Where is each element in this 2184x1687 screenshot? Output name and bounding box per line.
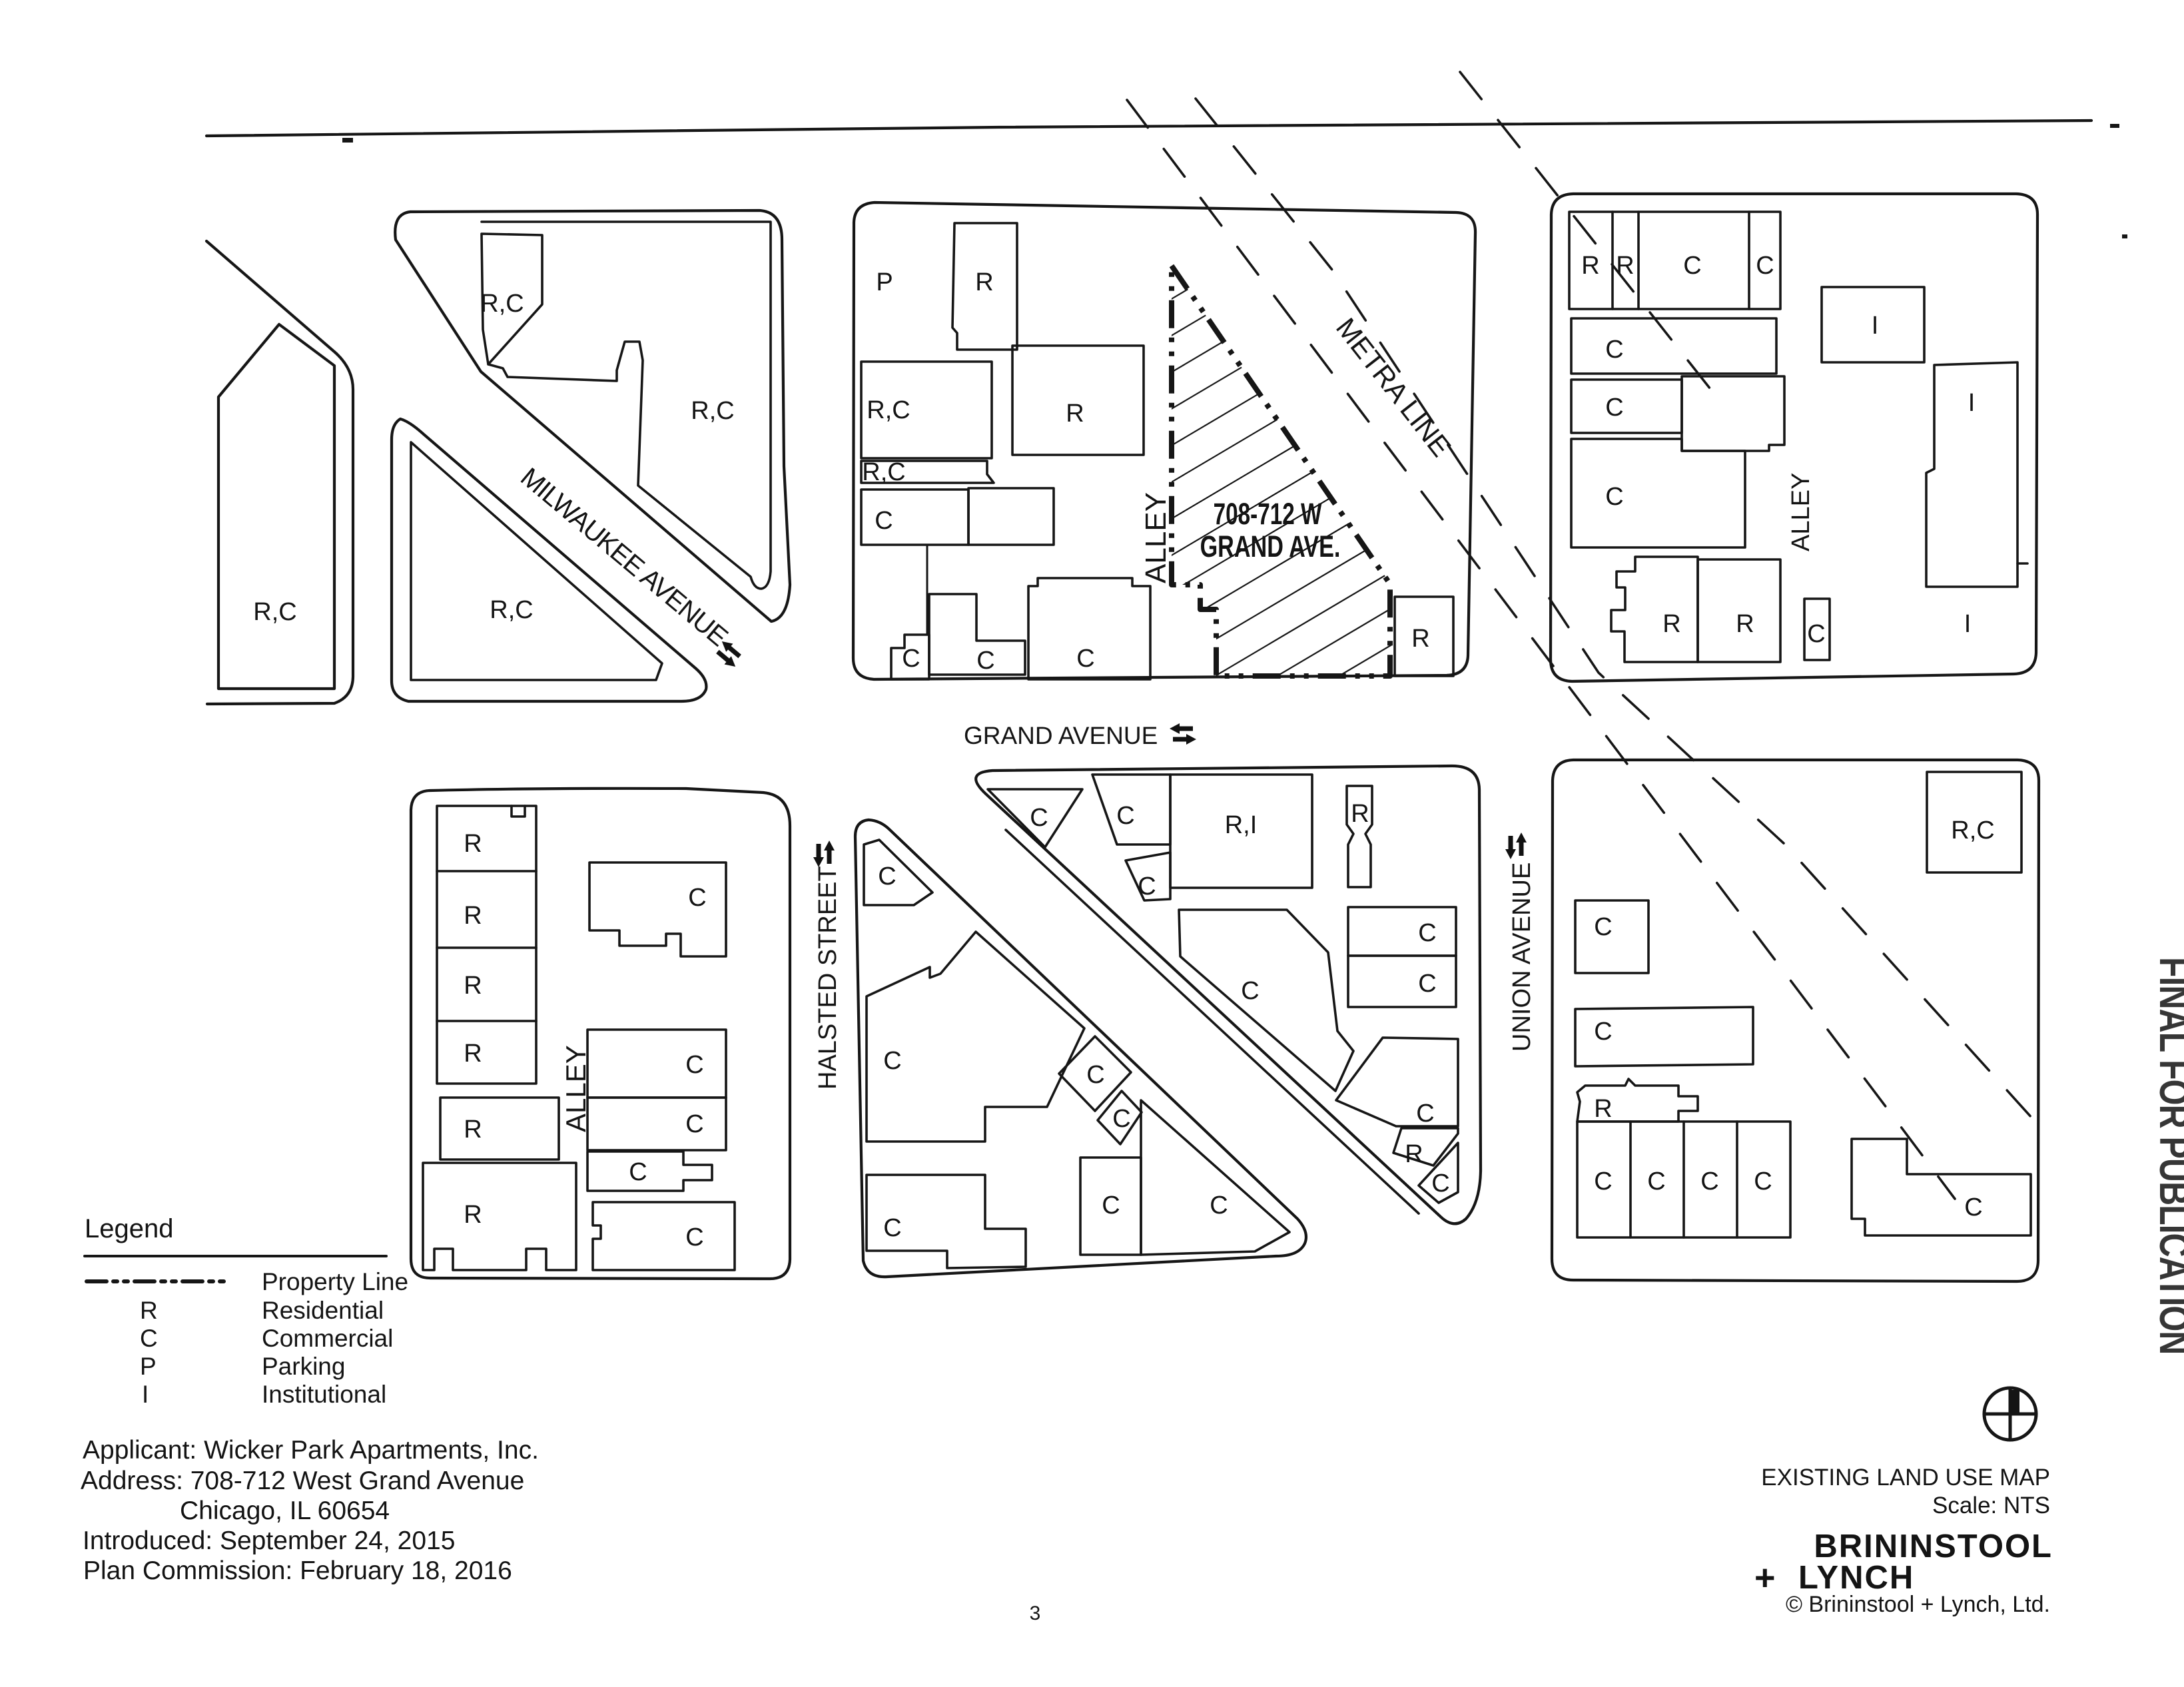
svg-text:GRAND AVE.: GRAND AVE. bbox=[1200, 531, 1341, 564]
svg-text:Commercial: Commercial bbox=[262, 1325, 393, 1352]
svg-text:C: C bbox=[1418, 970, 1436, 998]
svg-text:C: C bbox=[878, 862, 896, 890]
svg-text:C: C bbox=[1647, 1168, 1665, 1195]
svg-text:C: C bbox=[902, 645, 920, 673]
svg-text:C: C bbox=[629, 1158, 647, 1186]
svg-text:R,C: R,C bbox=[1951, 817, 1994, 844]
svg-text:ALLEY: ALLEY bbox=[1140, 492, 1172, 583]
svg-text:C: C bbox=[1116, 802, 1134, 830]
svg-text:R,C: R,C bbox=[490, 596, 533, 624]
svg-text:ALLEY: ALLEY bbox=[1787, 473, 1815, 551]
svg-text:C: C bbox=[685, 1110, 703, 1138]
svg-text:C: C bbox=[1807, 620, 1825, 648]
svg-text:LYNCH: LYNCH bbox=[1798, 1560, 1914, 1596]
svg-text:Applicant: Wicker Park Apartme: Applicant: Wicker Park Apartments, Inc. bbox=[83, 1436, 539, 1465]
svg-text:BRININSTOOL: BRININSTOOL bbox=[1814, 1528, 2053, 1564]
svg-text:Property Line: Property Line bbox=[262, 1268, 408, 1295]
svg-text:C: C bbox=[1700, 1168, 1718, 1195]
svg-text:C: C bbox=[1431, 1170, 1449, 1197]
svg-text:C: C bbox=[1683, 252, 1701, 280]
svg-text:R: R bbox=[464, 830, 482, 858]
svg-text:UNION AVENUE: UNION AVENUE bbox=[1508, 862, 1536, 1052]
svg-text:C: C bbox=[1112, 1105, 1130, 1133]
svg-text:C: C bbox=[1416, 1100, 1434, 1128]
svg-text:Scale: NTS: Scale: NTS bbox=[1932, 1493, 2050, 1518]
svg-text:R,I: R,I bbox=[1225, 811, 1258, 839]
svg-text:C: C bbox=[1210, 1191, 1228, 1219]
svg-text:P: P bbox=[876, 268, 893, 296]
svg-text:C: C bbox=[1605, 483, 1623, 511]
svg-text:I: I bbox=[1968, 389, 1976, 417]
svg-text:Chicago, IL 60654: Chicago, IL 60654 bbox=[180, 1497, 390, 1525]
svg-text:R: R bbox=[1616, 252, 1634, 280]
svg-text:C: C bbox=[685, 1223, 703, 1251]
svg-text:R: R bbox=[975, 268, 993, 296]
svg-text:R: R bbox=[1662, 610, 1680, 638]
svg-text:C: C bbox=[1756, 252, 1774, 280]
svg-text:C: C bbox=[1418, 919, 1436, 947]
svg-text:R: R bbox=[1594, 1095, 1612, 1123]
svg-text:P: P bbox=[140, 1353, 157, 1380]
svg-text:R: R bbox=[464, 1201, 482, 1229]
svg-text:C: C bbox=[883, 1214, 901, 1242]
svg-text:R,C: R,C bbox=[867, 396, 910, 424]
svg-text:C: C bbox=[685, 1051, 703, 1079]
svg-text:I: I bbox=[1872, 312, 1879, 340]
svg-text:R: R bbox=[464, 972, 482, 1000]
svg-text:C: C bbox=[883, 1047, 901, 1075]
svg-text:HALSTED STREET: HALSTED STREET bbox=[814, 866, 842, 1090]
svg-text:R: R bbox=[464, 902, 482, 930]
svg-text:R: R bbox=[1066, 400, 1084, 428]
svg-text:R: R bbox=[1411, 625, 1429, 653]
svg-text:C: C bbox=[1102, 1191, 1120, 1219]
svg-text:I: I bbox=[142, 1381, 149, 1408]
svg-text:R: R bbox=[1581, 252, 1599, 280]
svg-text:GRAND AVENUE: GRAND AVENUE bbox=[964, 722, 1158, 749]
svg-text:C: C bbox=[688, 884, 706, 912]
svg-text:C: C bbox=[1594, 1018, 1612, 1046]
svg-text:C: C bbox=[1754, 1168, 1772, 1195]
svg-text:C: C bbox=[976, 647, 994, 675]
svg-text:R: R bbox=[1736, 610, 1754, 638]
svg-text:C: C bbox=[140, 1325, 158, 1352]
svg-text:C: C bbox=[875, 507, 893, 535]
svg-text:Parking: Parking bbox=[262, 1353, 345, 1380]
svg-text:C: C bbox=[1076, 645, 1094, 673]
svg-text:C: C bbox=[1138, 872, 1156, 900]
svg-text:C: C bbox=[1964, 1193, 1982, 1221]
svg-text:C: C bbox=[1086, 1061, 1104, 1089]
svg-text:C: C bbox=[1605, 394, 1623, 422]
svg-text:R,C: R,C bbox=[691, 397, 734, 425]
svg-text:R,C: R,C bbox=[862, 458, 905, 486]
svg-text:R: R bbox=[1351, 800, 1369, 828]
svg-text:R: R bbox=[1405, 1140, 1423, 1168]
svg-text:EXISTING LAND USE MAP: EXISTING LAND USE MAP bbox=[1761, 1465, 2050, 1491]
svg-text:3: 3 bbox=[1030, 1602, 1041, 1624]
svg-text:R,C: R,C bbox=[480, 290, 524, 318]
svg-text:C: C bbox=[1030, 804, 1048, 832]
svg-text:C: C bbox=[1594, 913, 1612, 941]
svg-text:R,C: R,C bbox=[253, 598, 296, 626]
svg-text:C: C bbox=[1594, 1168, 1612, 1195]
svg-text:METRA LINE: METRA LINE bbox=[1330, 312, 1457, 463]
svg-text:Introduced: September 24, 2015: Introduced: September 24, 2015 bbox=[83, 1526, 455, 1555]
svg-text:I: I bbox=[1964, 610, 1972, 638]
svg-text:Legend: Legend bbox=[85, 1214, 173, 1243]
svg-text:Address: 708-712 West Grand Av: Address: 708-712 West Grand Avenue bbox=[81, 1467, 524, 1495]
svg-text:C: C bbox=[1241, 977, 1259, 1005]
svg-text:FINAL FOR PUBLICATION: FINAL FOR PUBLICATION bbox=[2151, 957, 2184, 1354]
svg-text:Plan Commission: February 18,: Plan Commission: February 18, 2016 bbox=[83, 1556, 512, 1585]
svg-text:Residential: Residential bbox=[262, 1297, 384, 1324]
svg-text:708-712 W: 708-712 W bbox=[1214, 498, 1322, 531]
svg-text:R: R bbox=[464, 1040, 482, 1068]
svg-text:R: R bbox=[464, 1116, 482, 1144]
svg-text:R: R bbox=[140, 1297, 158, 1324]
svg-text:C: C bbox=[1605, 336, 1623, 364]
svg-text:Institutional: Institutional bbox=[262, 1381, 386, 1408]
svg-text:© Brininstool + Lynch, Ltd.: © Brininstool + Lynch, Ltd. bbox=[1786, 1592, 2050, 1617]
svg-text:+: + bbox=[1754, 1558, 1776, 1598]
svg-text:MILWAUKEE AVENUE: MILWAUKEE AVENUE bbox=[515, 462, 733, 651]
